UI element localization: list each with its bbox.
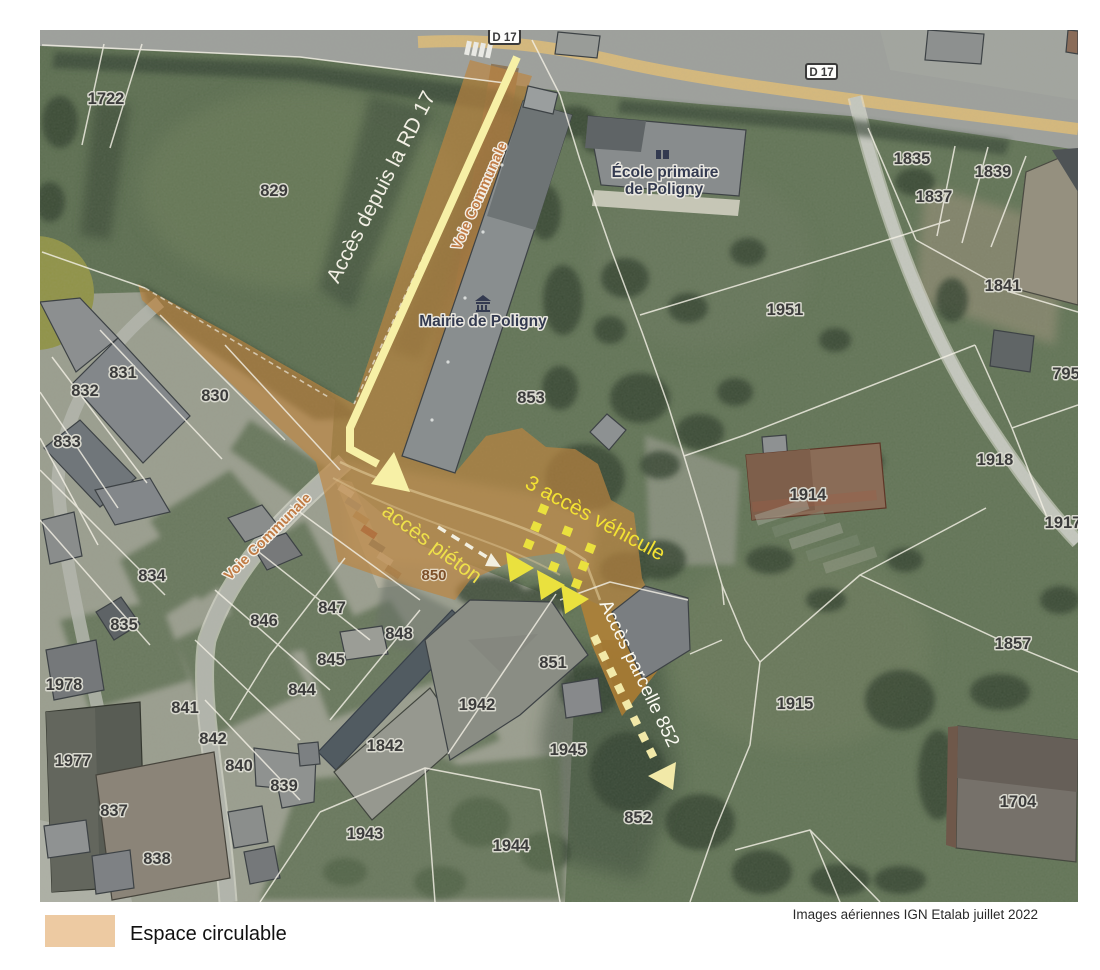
svg-text:830: 830 [201, 387, 229, 405]
svg-text:1914: 1914 [790, 486, 828, 504]
svg-text:1915: 1915 [777, 695, 814, 713]
svg-text:842: 842 [199, 730, 227, 748]
svg-text:837: 837 [100, 802, 128, 820]
svg-text:Images aériennes IGN Etalab ju: Images aériennes IGN Etalab juillet 2022 [793, 907, 1038, 922]
svg-text:1841: 1841 [985, 277, 1022, 295]
svg-text:852: 852 [624, 809, 652, 827]
svg-text:1917: 1917 [1045, 514, 1082, 532]
svg-text:D 17: D 17 [809, 67, 833, 79]
svg-text:841: 841 [171, 699, 199, 717]
svg-text:1977: 1977 [55, 752, 92, 770]
svg-text:1944: 1944 [493, 837, 531, 855]
svg-text:844: 844 [288, 681, 316, 699]
svg-text:1951: 1951 [767, 301, 804, 319]
svg-text:853: 853 [517, 389, 545, 407]
svg-text:1942: 1942 [459, 696, 496, 714]
svg-text:1857: 1857 [995, 635, 1032, 653]
svg-text:845: 845 [317, 651, 345, 669]
svg-text:1837: 1837 [916, 188, 953, 206]
svg-text:839: 839 [270, 777, 298, 795]
svg-text:833: 833 [53, 433, 81, 451]
svg-text:848: 848 [385, 625, 413, 643]
svg-text:1945: 1945 [550, 741, 587, 759]
svg-text:de Poligny: de Poligny [625, 181, 704, 198]
svg-text:Mairie de Poligny: Mairie de Poligny [419, 313, 547, 330]
svg-text:École primaire: École primaire [612, 164, 719, 181]
svg-text:847: 847 [318, 599, 346, 617]
svg-text:795: 795 [1052, 365, 1080, 383]
svg-text:831: 831 [109, 364, 137, 382]
svg-text:1918: 1918 [977, 451, 1014, 469]
svg-text:1978: 1978 [46, 676, 83, 694]
svg-text:1704: 1704 [1000, 793, 1038, 811]
svg-text:832: 832 [71, 382, 99, 400]
svg-text:829: 829 [260, 182, 288, 200]
svg-text:838: 838 [143, 850, 171, 868]
svg-text:850: 850 [421, 567, 446, 584]
svg-text:835: 835 [110, 616, 138, 634]
svg-text:1943: 1943 [347, 825, 384, 843]
svg-text:1722: 1722 [88, 90, 125, 108]
svg-text:834: 834 [138, 567, 166, 585]
svg-text:D 17: D 17 [492, 32, 516, 44]
svg-text:1839: 1839 [975, 163, 1012, 181]
svg-text:851: 851 [539, 654, 567, 672]
svg-text:Espace circulable: Espace circulable [130, 923, 287, 945]
svg-text:840: 840 [225, 757, 253, 775]
svg-text:846: 846 [250, 612, 278, 630]
svg-text:1835: 1835 [894, 150, 931, 168]
svg-text:1842: 1842 [367, 737, 404, 755]
